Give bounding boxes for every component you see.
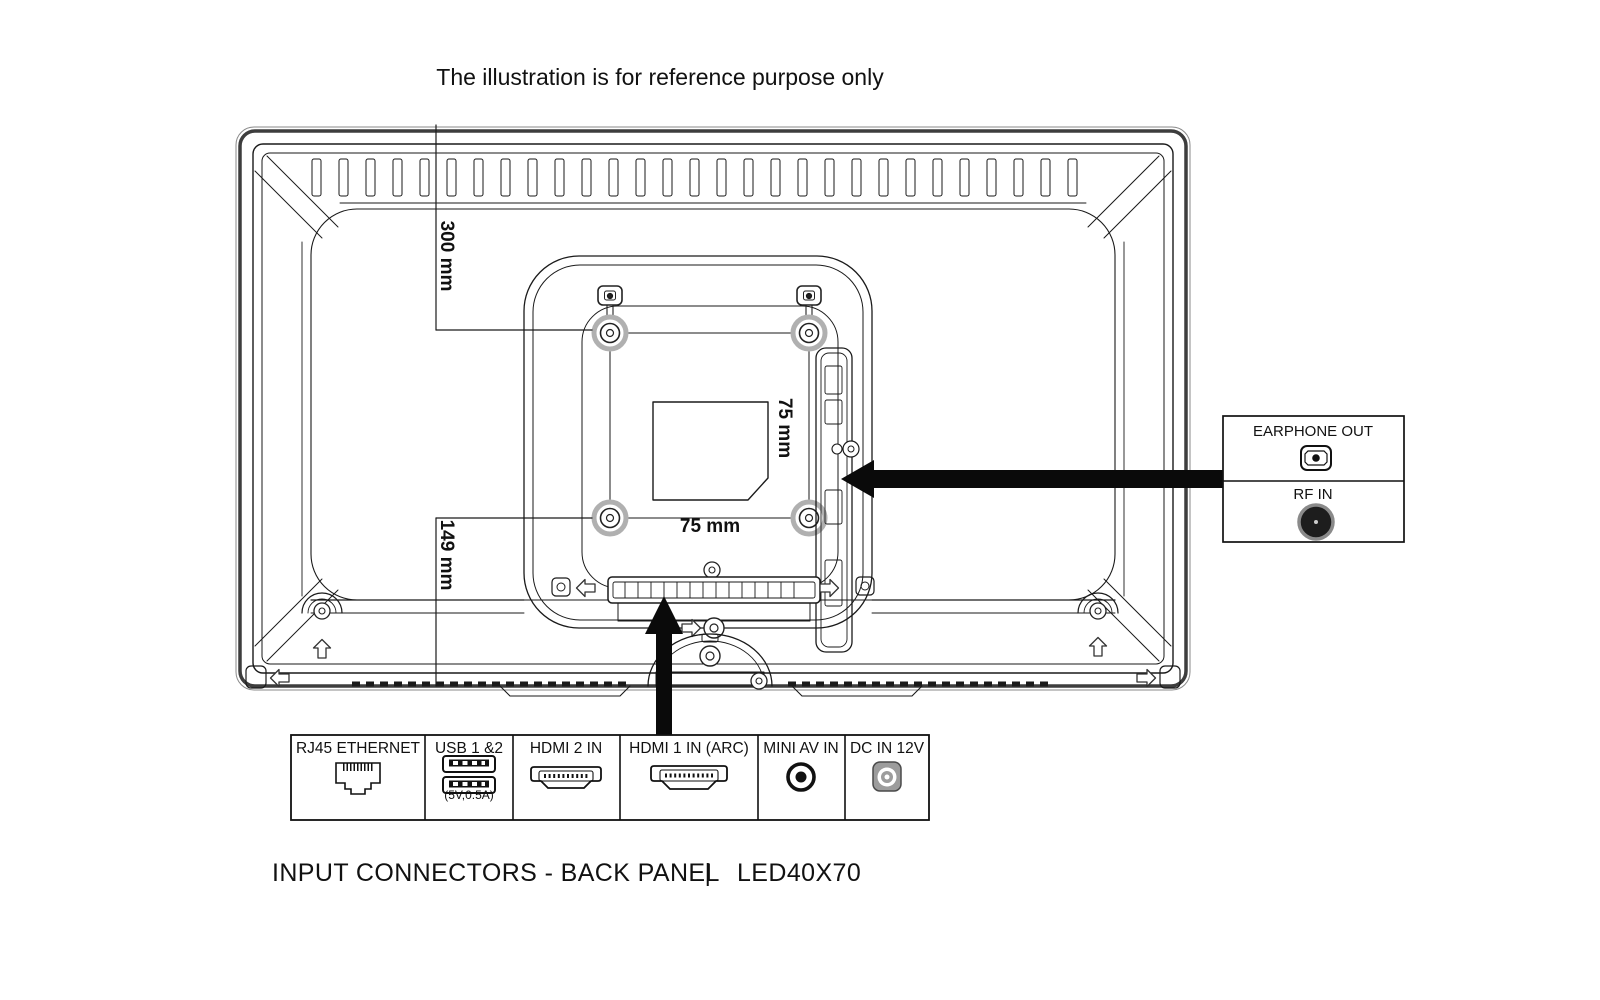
usb-power-sublabel: (5V,0.5A): [444, 788, 494, 802]
dimension-label-149mm: 149 mm: [436, 520, 457, 591]
vesa-screw-bottom-left: [594, 502, 626, 534]
chassis-screw-left: [314, 603, 330, 619]
rj45-label: RJ45 ETHERNET: [296, 740, 421, 757]
side-outputs-panel: EARPHONE OUT RF IN: [1223, 416, 1404, 542]
dc-in-label: DC IN 12V: [850, 740, 925, 757]
footer-separator: |: [705, 859, 712, 887]
earphone-out-label: EARPHONE OUT: [1253, 423, 1373, 440]
hdmi2-label: HDMI 2 IN: [530, 740, 602, 757]
dimension-label-vesa-height: 75 mm: [774, 398, 795, 458]
connector-cell-usb: USB 1 &2 (5V,0.5A): [435, 740, 503, 802]
caption-text: The illustration is for reference purpos…: [436, 64, 884, 90]
usb-label: USB 1 &2: [435, 740, 503, 757]
vesa-screw-top-left: [594, 317, 626, 349]
dimension-label-vesa-width: 75 mm: [680, 516, 740, 537]
tv-back-panel: 300 mm 149 mm 75 mm 75 mm: [236, 125, 1190, 696]
vesa-screw-bottom-right: [793, 502, 825, 534]
vesa-screw-top-right: [793, 317, 825, 349]
mini-av-label: MINI AV IN: [763, 740, 839, 757]
hdmi1-label: HDMI 1 IN (ARC): [629, 740, 749, 757]
stand-screw-lower: [751, 673, 767, 689]
strip-screw-top: [704, 562, 720, 578]
footer-heading: INPUT CONNECTORS - BACK PANEL: [272, 859, 720, 887]
diagram-canvas: The illustration is for reference purpos…: [0, 0, 1600, 1000]
chassis-screw-right: [1090, 603, 1106, 619]
footer-model: LED40X70: [737, 859, 861, 887]
dc-in-jack-icon: [873, 762, 901, 791]
tv-outer-frame: [236, 127, 1190, 690]
rf-coax-icon: [1299, 505, 1333, 539]
connector-table: RJ45 ETHERNET USB 1 &2 (5V,0.5A) HDMI 2 …: [291, 735, 929, 820]
footer-title: INPUT CONNECTORS - BACK PANEL | LED40X70: [272, 859, 861, 887]
dimension-label-300mm: 300 mm: [436, 221, 457, 292]
stand-screw-dome: [700, 646, 720, 666]
rf-in-label: RF IN: [1293, 486, 1332, 503]
